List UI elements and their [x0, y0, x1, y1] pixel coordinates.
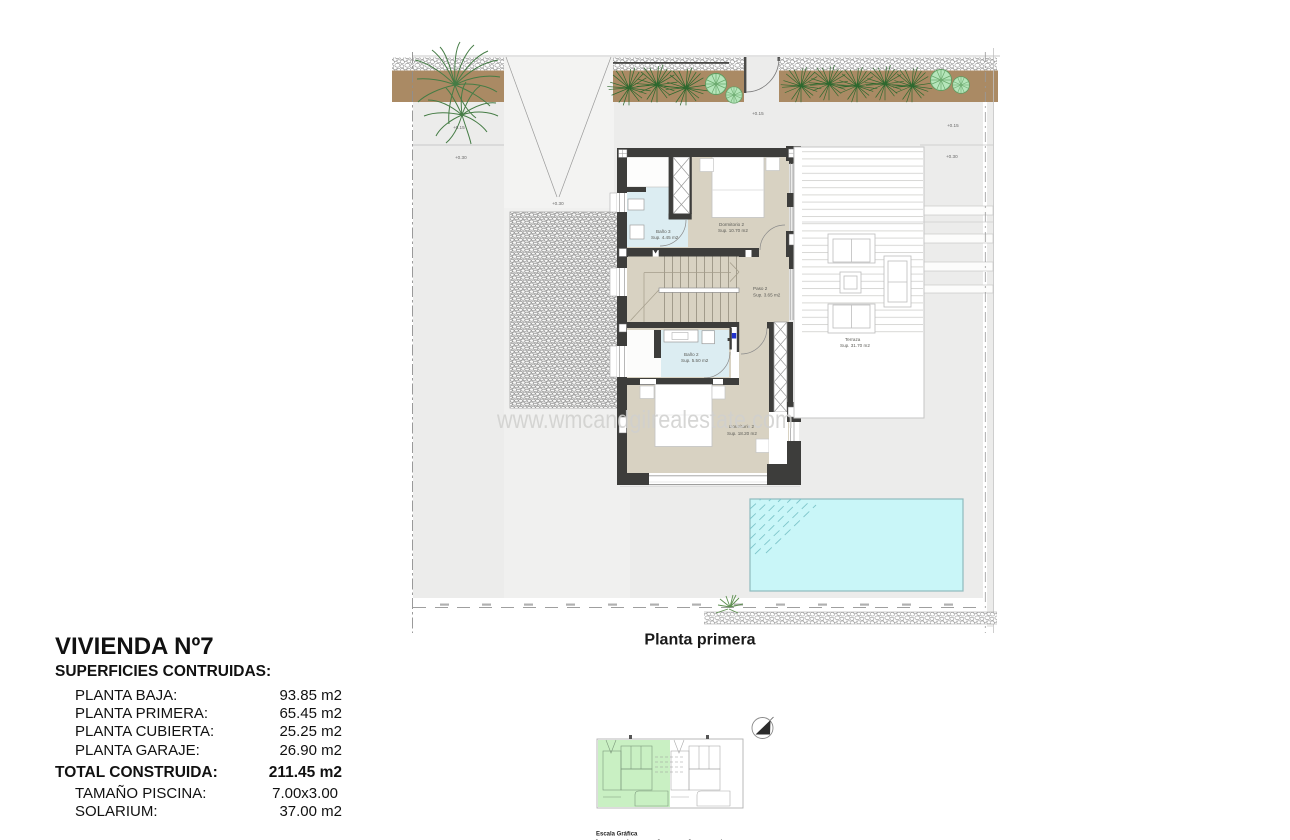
svg-text:Sup. 31.70 m2: Sup. 31.70 m2 [840, 343, 870, 348]
svg-text:+0.30: +0.30 [946, 154, 958, 159]
svg-text:+0.15: +0.15 [947, 123, 959, 128]
svg-text:TOTAL CONSTRUIDA:: TOTAL CONSTRUIDA: [55, 764, 218, 781]
svg-text:Planta primera: Planta primera [644, 632, 755, 649]
svg-text:Terraza: Terraza [845, 337, 861, 342]
svg-text:37.00 m2: 37.00 m2 [279, 803, 342, 820]
svg-text:Escala Gráfica: Escala Gráfica [596, 832, 638, 838]
svg-text:SOLARIUM:: SOLARIUM: [75, 803, 158, 820]
svg-text:Dormitorio 2: Dormitorio 2 [719, 222, 744, 227]
svg-text:PLANTA BAJA:: PLANTA BAJA: [75, 687, 177, 704]
svg-text:26.90 m2: 26.90 m2 [279, 742, 342, 759]
svg-text:SUPERFICIES CONTRUIDAS:: SUPERFICIES CONTRUIDAS: [55, 663, 271, 680]
svg-text:Baño 2: Baño 2 [684, 352, 699, 357]
svg-text:Sup. 3.65 m2: Sup. 3.65 m2 [753, 293, 781, 298]
svg-text:Sup. 10.70 m2: Sup. 10.70 m2 [718, 228, 748, 233]
svg-text:65.45 m2: 65.45 m2 [279, 705, 342, 722]
svg-text:PLANTA GARAJE:: PLANTA GARAJE: [75, 742, 200, 759]
svg-text:PLANTA PRIMERA:: PLANTA PRIMERA: [75, 705, 208, 722]
svg-text:TAMAÑO PISCINA:: TAMAÑO PISCINA: [75, 785, 206, 802]
svg-text:+0.15: +0.15 [453, 125, 465, 130]
svg-text:93.85 m2: 93.85 m2 [279, 687, 342, 704]
svg-text:7.00x3.00: 7.00x3.00 [272, 785, 338, 802]
svg-text:Sup. 5.50 m2: Sup. 5.50 m2 [681, 358, 709, 363]
svg-text:211.45 m2: 211.45 m2 [269, 764, 342, 781]
svg-text:Baño 3: Baño 3 [656, 229, 671, 234]
svg-text:Sup. 4.45 m2: Sup. 4.45 m2 [651, 235, 679, 240]
svg-text:www.wmcandgilrealestate.com: www.wmcandgilrealestate.com [496, 406, 793, 434]
svg-text:+0.30: +0.30 [455, 155, 467, 160]
svg-text:PLANTA CUBIERTA:: PLANTA CUBIERTA: [75, 723, 214, 740]
svg-text:+0.30: +0.30 [552, 201, 564, 206]
svg-text:+0.15: +0.15 [752, 111, 764, 116]
svg-text:VIVIENDA Nº7: VIVIENDA Nº7 [55, 633, 214, 660]
svg-text:25.25 m2: 25.25 m2 [279, 723, 342, 740]
svg-text:Paso 2: Paso 2 [753, 286, 768, 291]
